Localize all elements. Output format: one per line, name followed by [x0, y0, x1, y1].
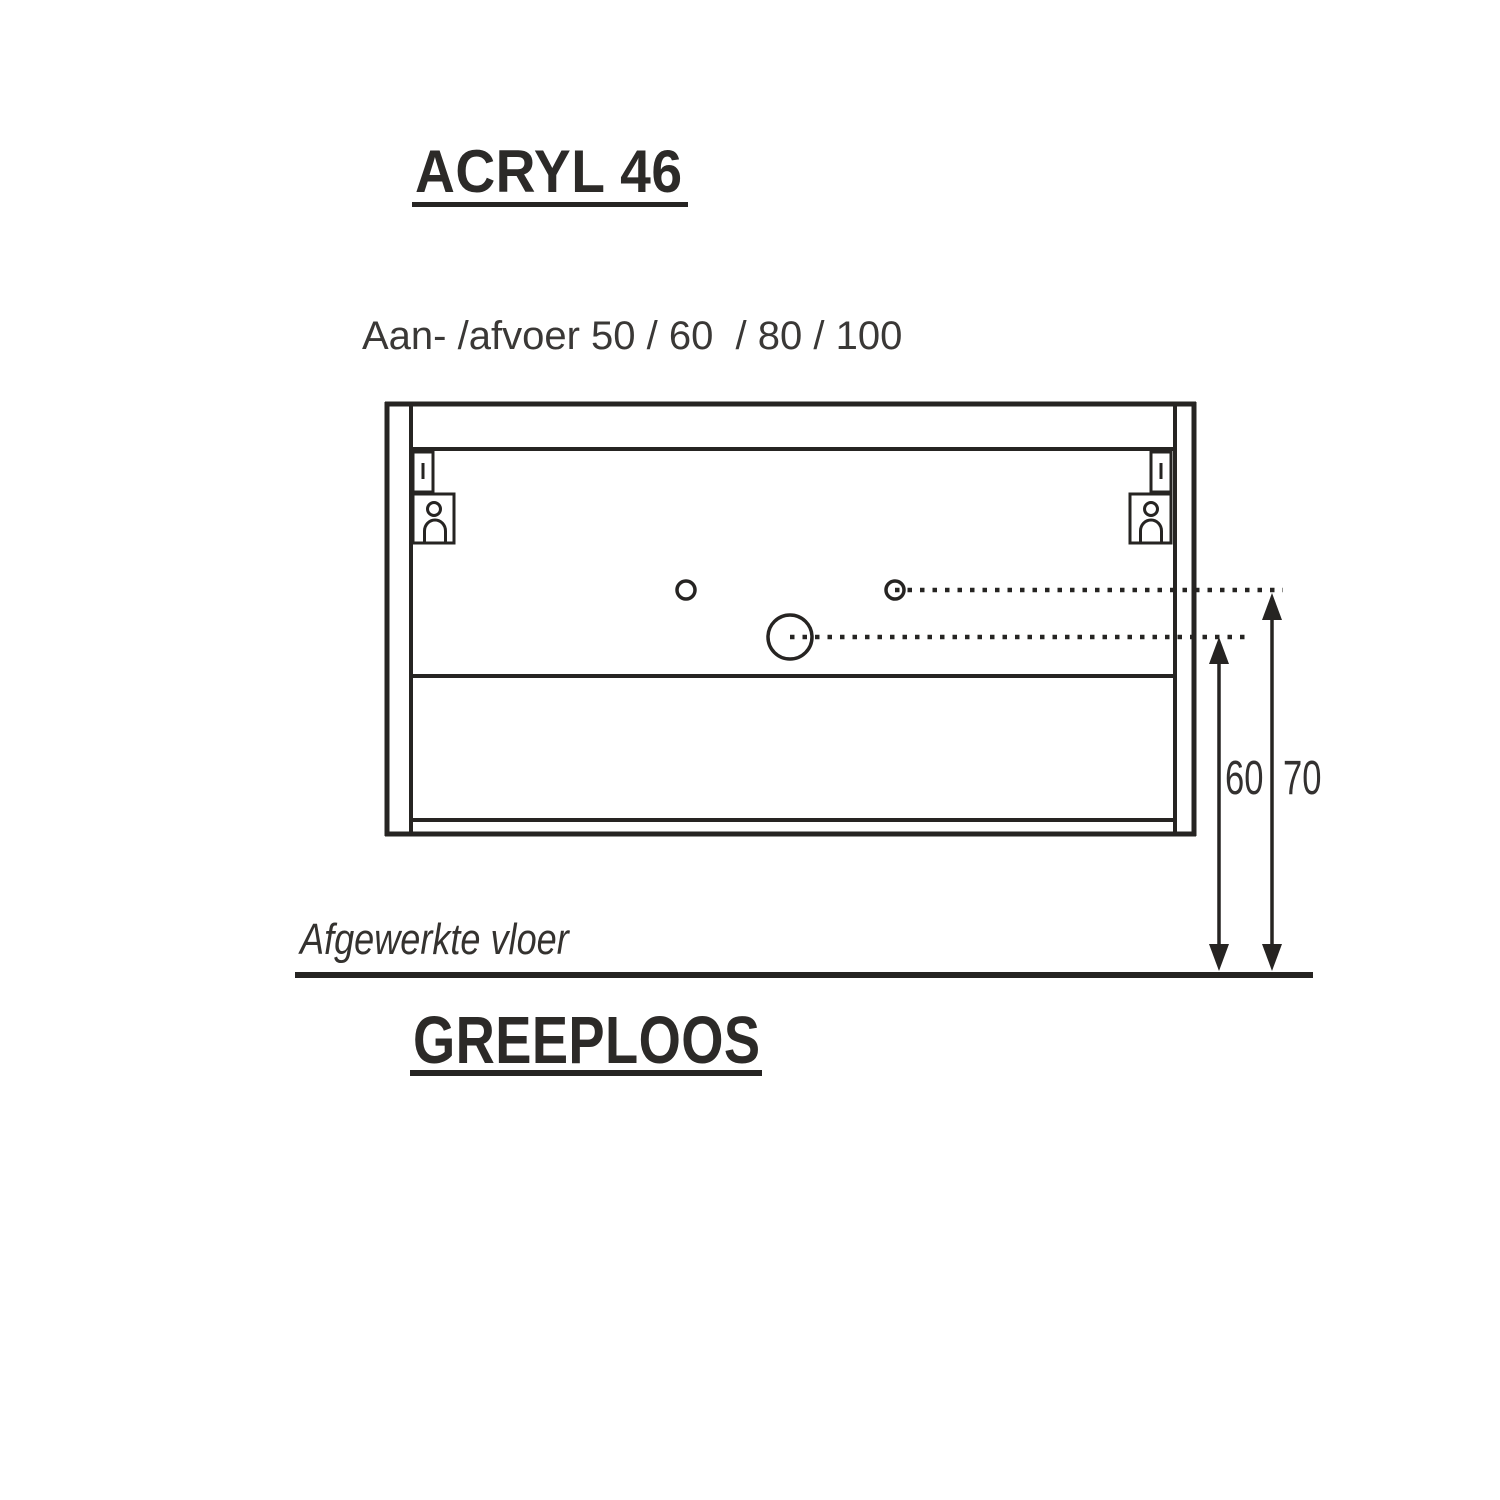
mounting-bracket-right: [1130, 452, 1171, 543]
hole-small-left: [677, 581, 695, 599]
leader-lines: [790, 590, 1283, 637]
connection-holes: [677, 581, 904, 659]
dimension-arrow-70: [1262, 593, 1282, 971]
arrowhead-down-70: [1262, 944, 1282, 971]
arrowhead-down-60: [1209, 944, 1229, 971]
dimension-arrow-60: [1209, 637, 1229, 971]
technical-drawing-page: ACRYL 46 Aan- /afvoer 50 / 60 / 80 / 100…: [0, 0, 1500, 1500]
cabinet-rear-view-drawing: [0, 0, 1500, 1500]
mounting-bracket-left: [413, 452, 454, 543]
